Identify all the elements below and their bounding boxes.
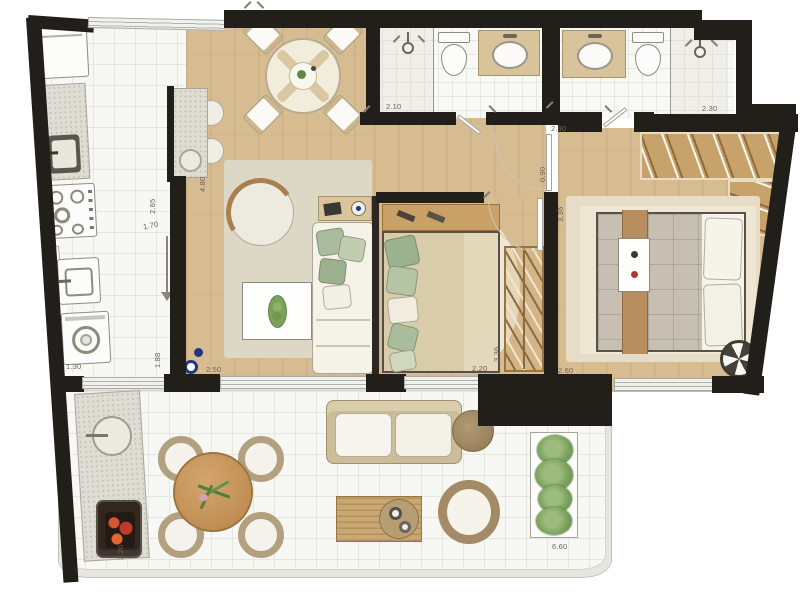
ladder-shelf bbox=[504, 246, 544, 372]
balcony-table bbox=[173, 452, 253, 532]
counter-sink bbox=[179, 149, 202, 172]
headboard-item-1 bbox=[397, 210, 416, 222]
vanity1-faucet bbox=[503, 34, 517, 38]
bedroom2-balcony-slider bbox=[404, 376, 480, 389]
dim-bath2-width: 2.30 bbox=[702, 104, 717, 113]
dim-bedroom2-width: 2.20 bbox=[472, 364, 487, 373]
dim-bath1-width: 2.10 bbox=[386, 102, 401, 111]
vanity2-faucet bbox=[588, 34, 602, 38]
sofa-pillow-4 bbox=[322, 284, 352, 311]
bed2-pillow-2 bbox=[385, 265, 419, 297]
dim-balcony-length: 6.60 bbox=[552, 542, 567, 551]
wall-top-main bbox=[224, 10, 702, 28]
toilet1-bowl bbox=[441, 44, 467, 76]
tray-cup-2 bbox=[399, 521, 411, 533]
master-pillow-1 bbox=[703, 217, 743, 280]
wall-living-south-stub bbox=[366, 374, 406, 392]
master-pillow-2 bbox=[703, 283, 743, 346]
shower1-stem bbox=[407, 32, 409, 43]
bed2-pillow-3 bbox=[387, 296, 420, 325]
tray-cup-1 bbox=[389, 507, 402, 520]
sofa-seam-2 bbox=[316, 345, 370, 347]
refrigerator-divider bbox=[36, 34, 82, 38]
sofa-pillow-2 bbox=[337, 235, 367, 263]
sofa-console bbox=[318, 196, 372, 221]
master-duvet bbox=[598, 214, 702, 350]
bed2-pillow-1 bbox=[383, 234, 421, 270]
dim-master-width: 2.60 bbox=[558, 366, 573, 375]
bed-tray-dot-2 bbox=[631, 271, 638, 278]
bed2-pillow-5 bbox=[388, 349, 417, 373]
balcony-chair-se bbox=[238, 512, 284, 558]
toilet2 bbox=[632, 32, 664, 80]
balcony-coffee-table bbox=[336, 496, 422, 542]
tick-top-1 bbox=[244, 1, 251, 8]
plant-4 bbox=[536, 507, 572, 535]
sofa-seam-1 bbox=[316, 319, 370, 321]
bed-tray-dot-1 bbox=[631, 251, 638, 258]
wall-bedroom2-top bbox=[376, 192, 484, 203]
sofa bbox=[312, 222, 374, 374]
balcony-round-chair bbox=[438, 480, 500, 544]
bed2-pillow-4 bbox=[386, 322, 419, 354]
shower2-head bbox=[694, 46, 706, 58]
console-plate-dot bbox=[356, 206, 361, 211]
bedroom2-door-leaf bbox=[537, 198, 543, 251]
dim-service-length: 1.88 bbox=[153, 353, 162, 368]
stove-knobs bbox=[88, 190, 94, 232]
ladder-rail bbox=[523, 248, 525, 369]
bedroom2-headboard bbox=[382, 204, 500, 231]
toilet1 bbox=[438, 32, 470, 80]
vanity1 bbox=[478, 30, 540, 76]
dim-balcony-depth: 2.20 bbox=[116, 545, 125, 560]
floor-spot-2 bbox=[184, 360, 198, 374]
table-deco-green bbox=[297, 70, 306, 79]
service-balcony-window bbox=[82, 377, 166, 389]
wall-service-bottom bbox=[56, 376, 84, 392]
wall-kitchen-living-thin bbox=[167, 86, 174, 182]
tick-top-2 bbox=[257, 1, 264, 8]
coffee-table bbox=[242, 282, 312, 340]
console-plate bbox=[351, 201, 366, 216]
grill-coals bbox=[105, 512, 135, 548]
living-balcony-slider bbox=[220, 376, 368, 389]
table-deco-dark bbox=[311, 66, 316, 71]
kitchen-sink bbox=[47, 134, 81, 174]
dim-hall-depth: 0.90 bbox=[538, 167, 547, 182]
wall-master-top bbox=[650, 114, 798, 132]
shower1-head bbox=[402, 42, 414, 54]
master-closet-top bbox=[640, 132, 792, 180]
burner-3 bbox=[54, 207, 71, 224]
master-window bbox=[614, 378, 714, 391]
burner-5 bbox=[72, 223, 85, 235]
dim-living-length: 4.80 bbox=[198, 177, 207, 192]
balcony-tray bbox=[379, 499, 419, 539]
headboard-item-2 bbox=[427, 211, 446, 223]
washer-door bbox=[71, 325, 100, 354]
wall-living-bedroom2 bbox=[372, 196, 379, 378]
washing-machine bbox=[61, 311, 112, 365]
wall-bath1-bath2 bbox=[542, 10, 560, 125]
dim-bedroom2-depth: 3.36 bbox=[492, 347, 501, 362]
toilet2-tank bbox=[632, 32, 664, 43]
washer-door-inner bbox=[80, 334, 93, 347]
toilet2-bowl bbox=[635, 44, 661, 76]
bed-tray bbox=[618, 238, 650, 292]
wall-bath1-bottom bbox=[360, 112, 456, 125]
armchair bbox=[228, 180, 294, 246]
dim-kitchen-length: 2.65 bbox=[148, 199, 157, 214]
wall-kitchen-living-thick bbox=[170, 176, 186, 380]
wall-south-block bbox=[478, 374, 612, 426]
floor-spot-1 bbox=[194, 348, 203, 357]
bedroom2-bed bbox=[382, 231, 500, 373]
laundry-tank bbox=[57, 257, 101, 305]
sofa-pillow-3 bbox=[318, 258, 347, 286]
master-door-leaf bbox=[546, 134, 552, 191]
balcony-sofa-cushion-2 bbox=[395, 413, 452, 457]
dining-table bbox=[265, 38, 341, 114]
vanity2-sink bbox=[577, 42, 613, 70]
burner-2 bbox=[70, 189, 85, 204]
wall-balcony-left-stub bbox=[164, 374, 220, 392]
dim-living-width: 2.50 bbox=[206, 365, 221, 374]
dim-master-depth: 3.36 bbox=[556, 207, 565, 222]
console-tray bbox=[323, 202, 342, 216]
dim-hall-width: 2.90 bbox=[551, 124, 566, 133]
wall-bath2-bottom-b bbox=[634, 112, 654, 132]
coffee-table-plant bbox=[268, 295, 287, 328]
balcony-sofa-cushion-1 bbox=[335, 413, 392, 457]
entry-arrow-line bbox=[166, 236, 168, 292]
toilet1-tank bbox=[438, 32, 470, 43]
planter-box bbox=[530, 432, 578, 538]
vanity2 bbox=[562, 30, 626, 78]
washer-panel bbox=[65, 315, 105, 321]
dim-service-width: 1.30 bbox=[66, 362, 81, 371]
balcony-sink-faucet bbox=[86, 434, 108, 437]
pass-through-counter bbox=[172, 88, 208, 178]
floor-plan: 2.10 2.30 2.90 0.90 3.36 2.60 2.20 3.36 … bbox=[0, 0, 800, 594]
balcony-sofa bbox=[326, 400, 462, 464]
flower-blossom bbox=[199, 494, 208, 501]
vanity1-sink bbox=[492, 41, 528, 69]
